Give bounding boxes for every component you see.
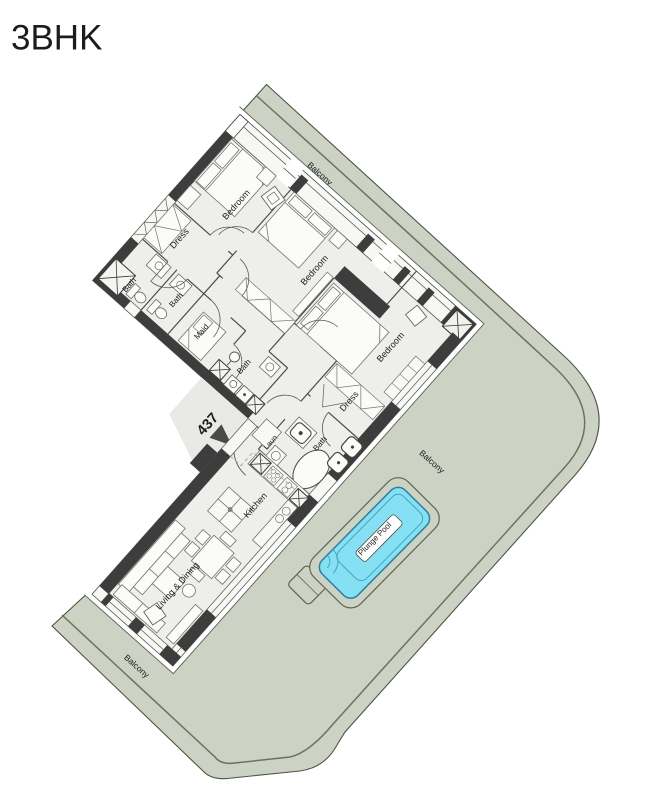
svg-text:3BHK: 3BHK: [11, 19, 102, 58]
